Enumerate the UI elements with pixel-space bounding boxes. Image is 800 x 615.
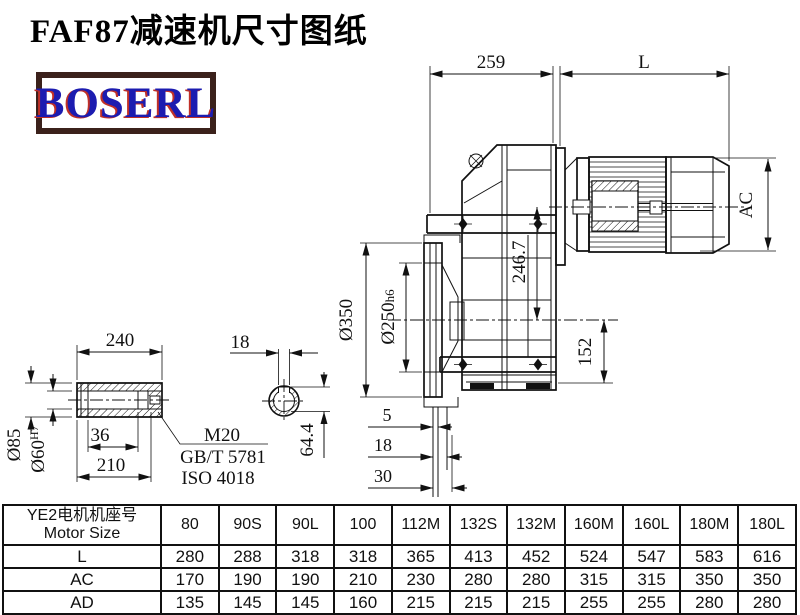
motor-size-column: 80 <box>161 505 219 545</box>
table-cell: 413 <box>450 545 508 568</box>
table-row: AD135145145160215215215255255280280 <box>3 591 796 614</box>
dim-AC-label: AC <box>736 192 757 218</box>
table-cell: 190 <box>219 568 277 591</box>
table-row: L280288318318365413452524547583616 <box>3 545 796 568</box>
table-cell: 145 <box>219 591 277 614</box>
table-cell: 280 <box>161 545 219 568</box>
dim-L-label: L <box>638 52 650 73</box>
table-cell: 280 <box>450 568 508 591</box>
table-cell: 288 <box>219 545 277 568</box>
row-label: L <box>3 545 161 568</box>
table-cell: 255 <box>623 591 681 614</box>
dim-keyway-height-label: 64.4 <box>297 423 318 457</box>
motor <box>556 148 729 265</box>
table-cell: 583 <box>680 545 738 568</box>
table-cell: 524 <box>565 545 623 568</box>
row-label: AD <box>3 591 161 614</box>
motor-size-header-cn: YE2电机机座号 <box>4 507 160 525</box>
dim-36-label: 36 <box>91 425 110 446</box>
dim-flange-od-label: Ø350 <box>336 299 357 341</box>
table-cell: 210 <box>334 568 392 591</box>
motor-size-column: 160M <box>565 505 623 545</box>
dim-18-label: 18 <box>374 435 392 455</box>
motor-size-column: 90L <box>276 505 334 545</box>
dim-259-label: 259 <box>477 52 506 73</box>
table-cell: 170 <box>161 568 219 591</box>
table-cell: 190 <box>276 568 334 591</box>
dim-210-label: 210 <box>97 455 126 476</box>
row-label: AC <box>3 568 161 591</box>
table-row: AC170190190210230280280315315350350 <box>3 568 796 591</box>
table-cell: 215 <box>392 591 450 614</box>
table-cell: 160 <box>334 591 392 614</box>
motor-size-column: 132M <box>507 505 565 545</box>
dim-spigot-label: Ø250h6 <box>378 289 399 345</box>
motor-size-column: 160L <box>623 505 681 545</box>
table-cell: 145 <box>276 591 334 614</box>
dim-240-label: 240 <box>106 330 135 351</box>
standard-gb-label: GB/T 5781 <box>180 447 266 468</box>
dim-bore-label: Ø60H7 <box>27 425 49 472</box>
bolt-icon <box>454 216 472 232</box>
dim-246-7-label: 246.7 <box>509 241 530 284</box>
table-cell: 315 <box>623 568 681 591</box>
table-cell: 547 <box>623 545 681 568</box>
motor-size-column: 112M <box>392 505 450 545</box>
table-cell: 318 <box>276 545 334 568</box>
standard-iso-label: ISO 4018 <box>181 468 254 489</box>
motor-size-column: 100 <box>334 505 392 545</box>
motor-size-table: YE2电机机座号 Motor Size 8090S90L100112M132S1… <box>2 504 797 615</box>
table-cell: 350 <box>680 568 738 591</box>
table-cell: 215 <box>507 591 565 614</box>
bolt-icon <box>454 359 472 371</box>
table-header-motor-size: YE2电机机座号 Motor Size <box>3 505 161 545</box>
table-cell: 365 <box>392 545 450 568</box>
table-cell: 280 <box>738 591 796 614</box>
table-cell: 135 <box>161 591 219 614</box>
dim-od-label: Ø85 <box>4 429 25 462</box>
table-cell: 230 <box>392 568 450 591</box>
table-cell: 280 <box>507 568 565 591</box>
table-cell: 255 <box>565 591 623 614</box>
bolt-icon <box>529 216 547 232</box>
table-cell: 215 <box>450 591 508 614</box>
dim-keyway-width-label: 18 <box>231 332 250 353</box>
motor-size-column: 90S <box>219 505 277 545</box>
hollow-shaft-detail: 240 Ø85 Ø60H7 36 210 M20 GB/T 5781 ISO 4… <box>4 330 268 489</box>
output-flange <box>424 235 464 497</box>
shaft-cross-section: 18 64.4 <box>230 332 330 458</box>
motor-size-column: 180M <box>680 505 738 545</box>
motor-size-column: 180L <box>738 505 796 545</box>
table-cell: 315 <box>565 568 623 591</box>
bolt-icon <box>529 359 547 371</box>
motor-size-column: 132S <box>450 505 508 545</box>
fan-cowl <box>666 157 729 253</box>
dim-5-label: 5 <box>383 405 392 425</box>
dim-30-label: 30 <box>374 466 392 486</box>
table-cell: 452 <box>507 545 565 568</box>
table-cell: 318 <box>334 545 392 568</box>
table-cell: 280 <box>680 591 738 614</box>
table-cell: 350 <box>738 568 796 591</box>
page: { "title": "FAF87减速机尺寸图纸", "logo_text": … <box>0 0 800 614</box>
table-cell: 616 <box>738 545 796 568</box>
thread-label: M20 <box>204 425 240 446</box>
motor-size-header-en: Motor Size <box>4 525 160 543</box>
dim-152-label: 152 <box>575 338 596 367</box>
table-header-row: YE2电机机座号 Motor Size 8090S90L100112M132S1… <box>3 505 796 545</box>
